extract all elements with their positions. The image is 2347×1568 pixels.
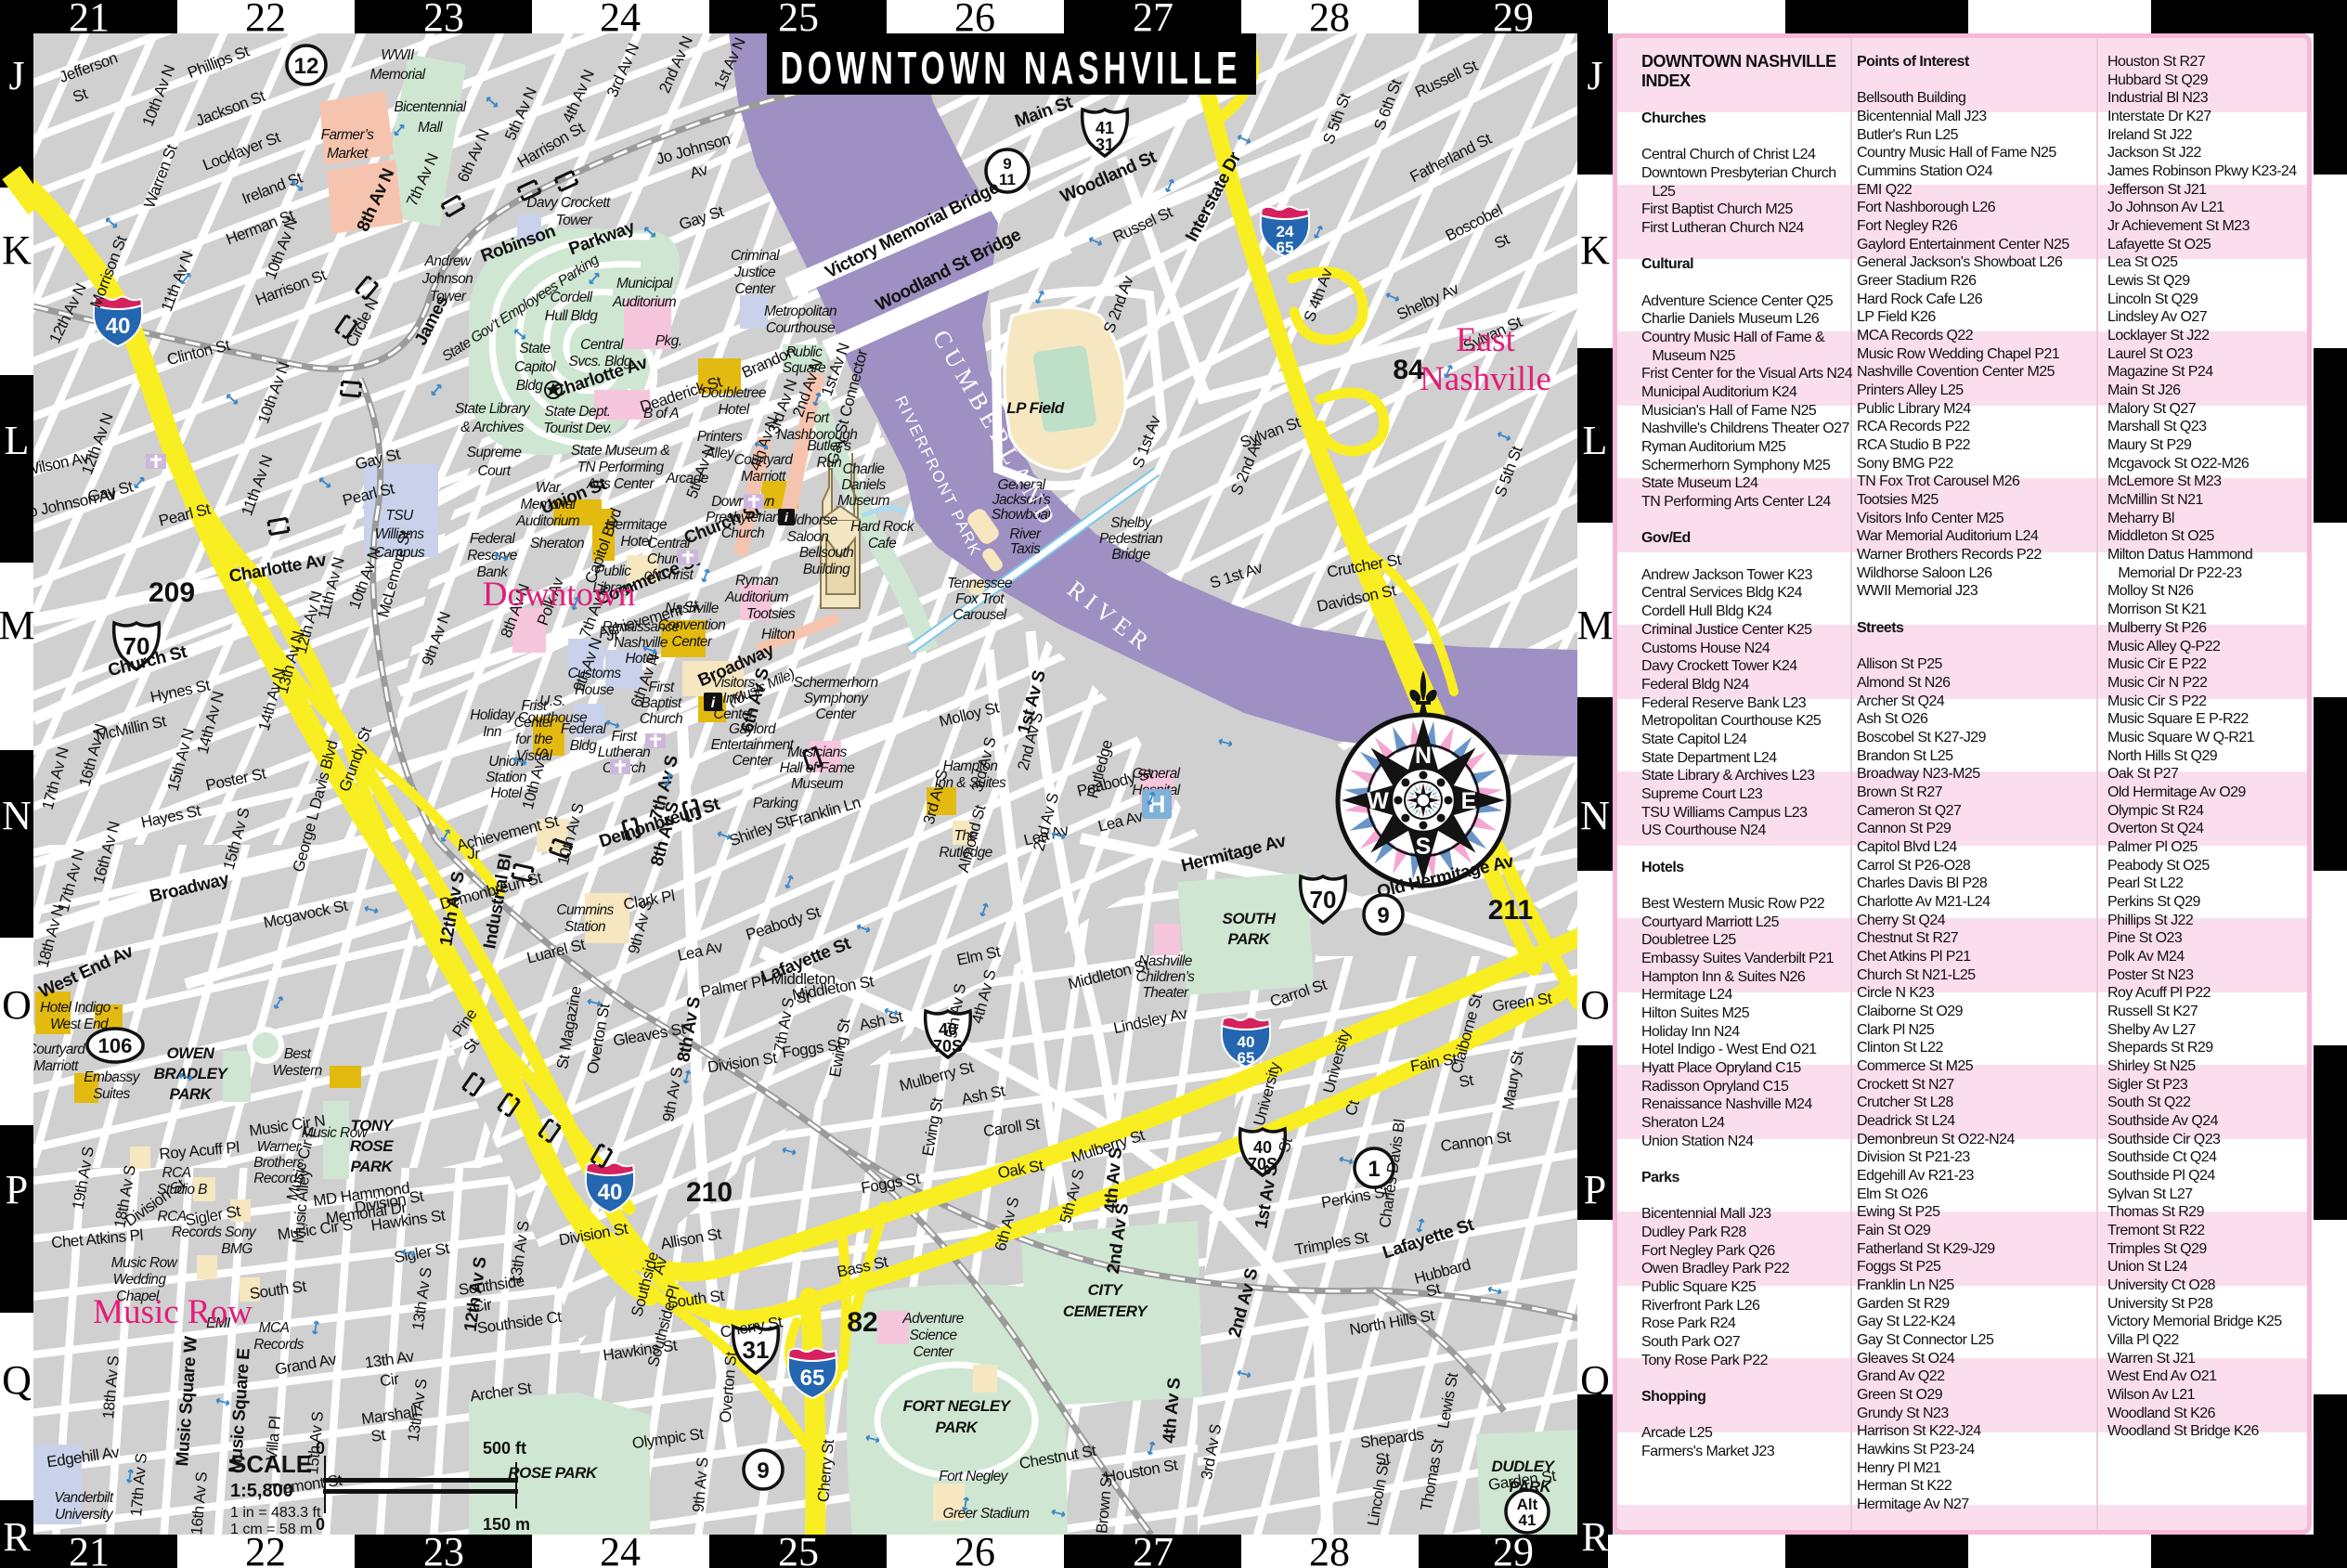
svg-text:West End: West End (50, 1017, 110, 1032)
svg-text:26: 26 (954, 1529, 995, 1568)
svg-text:Courthouse: Courthouse (766, 320, 836, 336)
svg-text:First: First (611, 729, 637, 745)
svg-text:Lutheran: Lutheran (598, 745, 650, 760)
svg-text:Tennessee: Tennessee (947, 576, 1013, 591)
svg-text:Center: Center (816, 706, 857, 722)
svg-text:70: 70 (1310, 886, 1337, 914)
svg-text:Schermerhorn: Schermerhorn (793, 675, 877, 691)
svg-text:Embassy: Embassy (84, 1069, 140, 1085)
svg-text:Wedding: Wedding (113, 1272, 167, 1288)
svg-text:State Dept.: State Dept. (545, 404, 611, 420)
svg-text:& Archives: & Archives (460, 420, 524, 435)
svg-text:R: R (1581, 1514, 1609, 1560)
svg-text:Court: Court (478, 463, 512, 479)
svg-text:Nashville: Nashville (614, 635, 668, 651)
svg-text:L: L (1583, 418, 1608, 463)
svg-text:PARK: PARK (351, 1158, 395, 1175)
svg-text:W: W (1367, 788, 1389, 814)
svg-text:40: 40 (106, 314, 131, 339)
svg-text:River: River (1009, 526, 1042, 542)
svg-text:Reserve: Reserve (467, 548, 517, 564)
svg-text:Marriott: Marriott (741, 469, 786, 485)
svg-text:Station: Station (564, 919, 605, 935)
svg-text:0: 0 (316, 1439, 325, 1458)
svg-text:21: 21 (69, 1529, 110, 1568)
svg-text:Fort Negley: Fort Negley (939, 1469, 1008, 1484)
svg-text:SCALE: SCALE (230, 1450, 312, 1478)
svg-text:Building: Building (803, 562, 850, 577)
svg-text:Records: Records (253, 1337, 304, 1353)
svg-text:RCA: RCA (162, 1165, 191, 1181)
svg-text:24: 24 (600, 1529, 641, 1568)
svg-text:N: N (1415, 743, 1432, 769)
svg-text:Cummins: Cummins (556, 902, 614, 918)
svg-text:Market: Market (327, 146, 369, 162)
svg-text:Fort: Fort (805, 410, 829, 426)
svg-text:Marriott: Marriott (33, 1058, 79, 1074)
svg-text:11: 11 (999, 171, 1016, 188)
svg-text:P: P (6, 1167, 28, 1212)
svg-text:Capitol: Capitol (514, 359, 556, 375)
svg-text:Ryman: Ryman (735, 573, 778, 589)
svg-text:DOWNTOWN NASHVILLE: DOWNTOWN NASHVILLE (781, 44, 1242, 94)
svg-text:Hall of Fame: Hall of Fame (780, 760, 856, 776)
svg-text:Best: Best (284, 1046, 312, 1062)
svg-text:Symphony: Symphony (804, 691, 869, 706)
svg-text:Downtown: Downtown (711, 494, 774, 510)
svg-text:Center: Center (735, 281, 776, 297)
svg-text:FORT NEGLEY: FORT NEGLEY (902, 1397, 1011, 1415)
svg-text:500 ft: 500 ft (483, 1439, 526, 1458)
svg-text:Criminal: Criminal (731, 248, 780, 264)
svg-text:23: 23 (423, 0, 464, 40)
svg-text:Western: Western (272, 1063, 321, 1079)
svg-text:Cir: Cir (379, 1370, 400, 1391)
svg-text:Auditorium: Auditorium (612, 294, 677, 310)
svg-text:29: 29 (1493, 1529, 1534, 1568)
svg-text:26: 26 (954, 0, 995, 40)
svg-text:Inn: Inn (483, 724, 501, 740)
svg-text:Tourist Dev.: Tourist Dev. (543, 421, 612, 436)
svg-text:65: 65 (800, 1366, 825, 1391)
svg-text:Cafe: Cafe (868, 536, 897, 551)
svg-text:Saloon: Saloon (787, 529, 829, 545)
svg-text:Supreme: Supreme (467, 445, 523, 460)
svg-text:Theater: Theater (1142, 985, 1189, 1001)
svg-text:24: 24 (600, 0, 641, 40)
svg-text:Justice: Justice (733, 265, 776, 280)
svg-text:Bridge: Bridge (1111, 547, 1150, 563)
svg-text:Tower: Tower (430, 289, 467, 305)
svg-text:Municipal: Municipal (616, 276, 673, 292)
svg-text:Greer Stadium: Greer Stadium (943, 1506, 1031, 1522)
svg-text:40: 40 (598, 1180, 623, 1205)
svg-text:State Museum &: State Museum & (571, 443, 669, 459)
svg-text:LP Field: LP Field (1006, 399, 1065, 417)
svg-text:Bldg: Bldg (570, 738, 598, 754)
svg-text:East: East (1456, 321, 1515, 359)
svg-text:21: 21 (69, 0, 110, 40)
svg-text:B of A: B of A (643, 406, 679, 421)
svg-text:Carousel: Carousel (953, 607, 1006, 623)
svg-text:Nashville: Nashville (1420, 360, 1551, 398)
svg-text:Fox Trot: Fox Trot (955, 591, 1005, 607)
svg-text:Cordell: Cordell (551, 290, 593, 305)
svg-text:Frist: Frist (521, 698, 547, 714)
svg-text:Pkg.: Pkg. (655, 333, 682, 349)
svg-text:Central: Central (647, 536, 691, 551)
svg-text:23: 23 (423, 1529, 464, 1568)
svg-text:for the: for the (515, 732, 553, 747)
svg-text:J: J (1587, 53, 1602, 98)
svg-text:41: 41 (1519, 1511, 1537, 1529)
svg-text:9: 9 (757, 1458, 769, 1484)
svg-text:1:5,800: 1:5,800 (230, 1481, 293, 1501)
svg-text:28: 28 (1309, 0, 1350, 40)
svg-text:TN Performing: TN Performing (577, 460, 665, 475)
svg-text:O: O (2, 982, 32, 1028)
svg-text:12: 12 (294, 54, 319, 79)
svg-text:Daniels: Daniels (841, 477, 886, 493)
svg-text:Museum: Museum (837, 493, 890, 509)
svg-text:106: 106 (98, 1034, 133, 1057)
svg-text:Music Row: Music Row (93, 1293, 253, 1331)
svg-text:Bellsouth: Bellsouth (799, 545, 853, 561)
svg-text:Central: Central (580, 337, 624, 353)
svg-text:210: 210 (686, 1177, 733, 1208)
svg-text:65: 65 (1277, 239, 1294, 256)
svg-text:P: P (1584, 1167, 1606, 1212)
svg-text:Memorial: Memorial (370, 67, 426, 83)
svg-text:OWEN: OWEN (167, 1044, 215, 1062)
svg-text:22: 22 (245, 1529, 286, 1568)
svg-text:Church: Church (721, 525, 764, 541)
svg-text:Tower: Tower (556, 213, 593, 228)
svg-text:Hull Bldg: Hull Bldg (545, 308, 599, 324)
svg-text:1: 1 (1368, 1157, 1380, 1182)
svg-text:Center: Center (672, 634, 713, 650)
svg-text:Q: Q (2, 1357, 32, 1403)
svg-text:MCA: MCA (259, 1320, 290, 1336)
svg-text:Hotel Indigo -: Hotel Indigo - (40, 1000, 118, 1016)
svg-text:27: 27 (1133, 0, 1173, 40)
svg-text:31: 31 (743, 1336, 770, 1364)
svg-text:R: R (3, 1514, 31, 1560)
svg-text:27: 27 (1133, 1529, 1173, 1568)
svg-text:29: 29 (1493, 0, 1534, 40)
svg-text:RCA: RCA (158, 1209, 187, 1225)
svg-text:Museum: Museum (791, 776, 844, 792)
svg-text:Courtyard: Courtyard (27, 1042, 87, 1057)
svg-text:WWII: WWII (381, 47, 415, 63)
svg-text:M: M (1576, 603, 1613, 648)
svg-text:Center: Center (514, 715, 555, 731)
svg-text:Charlie: Charlie (843, 461, 886, 477)
svg-text:Williams: Williams (375, 526, 425, 542)
svg-text:31: 31 (1096, 136, 1114, 154)
svg-text:Hilton: Hilton (761, 627, 795, 642)
svg-text:Nashville: Nashville (1138, 953, 1192, 969)
svg-text:Hotel: Hotel (490, 785, 522, 801)
svg-text:Pedestrian: Pedestrian (1099, 531, 1162, 547)
svg-text:211: 211 (1488, 895, 1533, 926)
svg-text:41: 41 (1096, 119, 1114, 137)
svg-text:PARK: PARK (1228, 930, 1272, 948)
svg-text:TSU: TSU (385, 508, 414, 524)
svg-text:Downtown: Downtown (483, 576, 635, 614)
svg-text:S: S (1416, 834, 1432, 860)
svg-text:Davy Crockett: Davy Crockett (526, 195, 611, 211)
svg-text:K: K (2, 227, 32, 273)
svg-text:9: 9 (1377, 903, 1389, 928)
svg-text:Records Sony: Records Sony (172, 1225, 257, 1240)
svg-text:Children’s: Children’s (1136, 969, 1195, 985)
svg-text:Mall: Mall (418, 120, 443, 136)
svg-text:Station: Station (486, 770, 526, 785)
svg-text:Parking: Parking (753, 796, 798, 811)
svg-text:Adventure: Adventure (901, 1311, 964, 1327)
svg-text:Tootsies: Tootsies (746, 606, 796, 622)
svg-text:i: i (711, 695, 716, 711)
svg-text:PARK: PARK (1510, 1478, 1553, 1496)
svg-text:Shelby: Shelby (1110, 515, 1153, 531)
svg-text:Center: Center (733, 753, 773, 769)
svg-text:State: State (519, 341, 551, 356)
svg-text:PARK: PARK (170, 1085, 214, 1103)
svg-text:Suites: Suites (93, 1086, 130, 1102)
svg-text:Bldg: Bldg (516, 378, 544, 394)
svg-text:M: M (0, 603, 35, 648)
svg-text:Johnson: Johnson (421, 271, 473, 287)
svg-text:Federal: Federal (470, 531, 516, 547)
svg-text:Taxis: Taxis (1010, 541, 1041, 557)
svg-text:SOUTH: SOUTH (1223, 910, 1277, 927)
svg-text:40: 40 (1253, 1138, 1272, 1157)
svg-text:82: 82 (847, 1307, 877, 1338)
svg-text:Metropolitan: Metropolitan (764, 304, 836, 319)
svg-text:Union: Union (488, 754, 524, 770)
svg-text:BMG: BMG (221, 1241, 253, 1257)
svg-text:25: 25 (778, 0, 819, 40)
svg-text:O: O (1580, 982, 1610, 1028)
svg-text:E: E (1461, 788, 1477, 814)
svg-text:Presbyterian: Presbyterian (706, 510, 780, 525)
svg-text:Entertainment: Entertainment (711, 737, 795, 753)
svg-text:BRADLEY: BRADLEY (154, 1065, 229, 1082)
svg-text:Holiday: Holiday (470, 707, 515, 723)
svg-text:J: J (8, 53, 24, 98)
svg-text:150 m: 150 m (483, 1515, 530, 1534)
svg-text:Bicentennial: Bicentennial (394, 99, 466, 115)
svg-text:K: K (1580, 227, 1610, 273)
svg-text:Studio B: Studio B (157, 1182, 207, 1198)
svg-text:DUDLEY: DUDLEY (1492, 1458, 1556, 1475)
svg-text:1 in = 483.3 ft: 1 in = 483.3 ft (230, 1505, 321, 1521)
svg-text:Auditorium: Auditorium (724, 590, 789, 605)
svg-text:ROSE PARK: ROSE PARK (508, 1464, 599, 1482)
svg-text:CITY: CITY (1088, 1281, 1124, 1299)
svg-text:25: 25 (778, 1529, 819, 1568)
svg-text:L: L (5, 418, 30, 463)
svg-text:65: 65 (1238, 1049, 1255, 1067)
svg-text:Hard Rock: Hard Rock (850, 519, 915, 535)
svg-text:Church: Church (640, 711, 682, 727)
svg-text:Music Row: Music Row (111, 1255, 179, 1271)
svg-text:Hotel: Hotel (718, 402, 749, 418)
svg-text:Printers: Printers (697, 429, 743, 445)
svg-text:Center: Center (914, 1344, 954, 1360)
svg-text:Federal: Federal (561, 721, 607, 737)
svg-text:Farmer’s: Farmer’s (321, 127, 374, 143)
svg-text:PARK: PARK (936, 1419, 979, 1436)
svg-text:28: 28 (1309, 1529, 1350, 1568)
svg-text:Sheraton: Sheraton (530, 536, 584, 551)
svg-text:209: 209 (149, 577, 195, 608)
svg-text:N: N (1580, 793, 1610, 838)
svg-text:State Library: State Library (455, 401, 531, 417)
svg-text:CEMETERY: CEMETERY (1063, 1302, 1148, 1320)
svg-text:Andrew: Andrew (424, 253, 473, 269)
svg-text:N: N (2, 793, 32, 838)
svg-text:22: 22 (245, 0, 286, 40)
svg-text:Vanderbilt: Vanderbilt (54, 1490, 114, 1506)
svg-text:Doubletree: Doubletree (701, 385, 767, 401)
svg-text:0: 0 (316, 1515, 325, 1534)
svg-text:University: University (55, 1507, 114, 1523)
svg-text:Science: Science (910, 1328, 958, 1343)
